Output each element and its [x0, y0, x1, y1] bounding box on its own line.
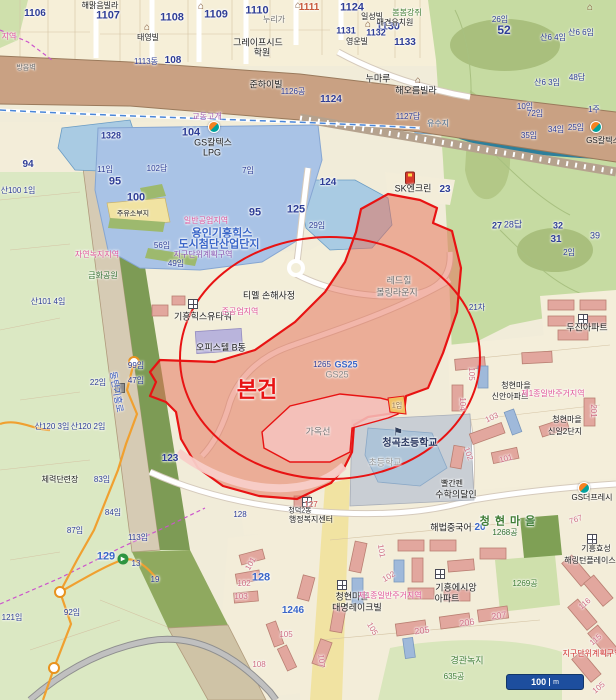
apt-chunghyun2-a: 청현마을 [552, 416, 581, 424]
center-name: 행정복지센터 [289, 516, 333, 524]
lot-1im-small: 1임 [392, 403, 402, 410]
apt-dujin: 두진아파트 [566, 324, 607, 333]
apt-hyosung-a: 기흥효성 [581, 545, 610, 553]
parcel-gas: 주유소부지 [117, 211, 149, 218]
apt-hyosung-b: 해링턴플레이스 [564, 557, 616, 565]
lot-48: 48답 [569, 74, 585, 82]
roundabout [289, 261, 303, 275]
lot-san101: 산101 4임 [31, 298, 66, 306]
lot-635: 635공 [444, 673, 465, 681]
lot-129: 129 [97, 552, 115, 563]
lot-1269: 1269공 [512, 580, 537, 588]
zone-semi-industrial: 준공업지역 [222, 308, 259, 316]
school-ghost: 초등학교 [368, 459, 401, 468]
building-icon-hicksu [188, 299, 198, 309]
building-icon-daemyung [337, 580, 347, 590]
num-108b: 108 [252, 661, 265, 669]
lot-128: 128 [233, 511, 246, 519]
zone-res1-b: 제1종일반주거지역 [358, 592, 421, 600]
lot-1131: 1131 [336, 27, 356, 36]
lot-22im: 22임 [90, 379, 106, 387]
lot-1106: 1106 [24, 9, 46, 19]
subject-bongeon: 본건 [237, 379, 277, 401]
lot-87im: 87임 [67, 527, 83, 535]
gs-logo-icon-right [590, 121, 602, 133]
lot-27: 27 [492, 222, 502, 231]
lot-25im: 25임 [568, 124, 584, 132]
lot-1107: 1107 [96, 11, 120, 22]
num-102b: 102 [237, 580, 250, 588]
lot-84im: 84임 [105, 509, 121, 517]
center-dong: 청덕2동 [288, 508, 311, 515]
gs25-name: GS25 [334, 361, 357, 370]
sk-encleen: SK엔크린 [395, 185, 432, 194]
lot-83im: 83임 [94, 476, 110, 484]
lot-1113: 1113동 [134, 58, 158, 66]
park-geumhwa: 금화공원 [88, 272, 117, 280]
fitness-area: 체력단련장 [42, 476, 79, 484]
lot-95a: 95 [109, 177, 121, 188]
scale-value: 100 [531, 677, 546, 687]
gs-fresh: GS더프레시 [572, 494, 613, 502]
num-201: 201 [589, 404, 597, 417]
lot-56im: 56임 [154, 242, 170, 250]
lot-1132: 1132 [366, 29, 386, 38]
scale-tick [549, 678, 550, 686]
lot-95b: 95 [249, 208, 261, 219]
lot-32: 32 [553, 222, 563, 231]
lot-35im: 35임 [521, 132, 537, 140]
txt-nuriga: 누리가 [263, 16, 285, 24]
bldg-haeoreum: 해오름빌라 [395, 87, 436, 96]
rest-numaru: 누마루 [366, 75, 391, 84]
apt-chunghyun2-b: 신일2단지 [548, 428, 582, 436]
zone-industrial: 일반공업지역 [184, 217, 228, 225]
lot-1111: 1111 [299, 3, 320, 13]
bldg-taeyoung: 태영빌 [137, 34, 159, 42]
school-icon: ⚑ [393, 428, 403, 439]
lot-1109: 1109 [204, 10, 228, 21]
noise-barrier: 방음벽 [16, 65, 35, 72]
building-icon-esiang [435, 569, 445, 579]
num-105: 105 [467, 367, 475, 380]
lot-121im: 121임 [2, 614, 23, 622]
pet-kindergarten-1: 봄봄강쥐 [392, 9, 421, 17]
lot-29im: 29임 [309, 222, 325, 230]
lot-13: 13 [132, 560, 141, 568]
map-canvas[interactable]: 1106해맑음빌라11071108태영빌11091110누리가11111124일… [0, 0, 616, 700]
village-chunghyun-green: 청현마을 [480, 517, 540, 528]
apt-esiang-a: 기흥에시앙 [435, 584, 476, 593]
lot-28dap: 28답 [504, 221, 522, 230]
park-gyeonggwan: 경관녹지 [450, 657, 483, 666]
pond-yusuji: 유수지 [427, 120, 449, 128]
academy-grapeseed-1: 그레이프시드 [233, 39, 283, 48]
lot-108: 108 [165, 56, 182, 66]
gs-lpg-2: LPG [203, 149, 221, 158]
lot-7im: 7임 [242, 167, 254, 175]
house-icon-4: ⌂ [144, 23, 150, 33]
lot-34im: 34임 [548, 126, 564, 134]
gs25-lot: 1265 [313, 361, 331, 369]
num-103b: 103 [234, 593, 247, 601]
lot-2im: 2임 [563, 249, 575, 257]
school-cheonggok: 청곡초등학교 [382, 439, 437, 449]
apt-daemyung-b: 대명레이크빌 [332, 604, 382, 613]
lot-san6-3: 산6 3임 [534, 79, 560, 87]
lot-san120-2: 산120 2임 [71, 423, 106, 431]
lot-1126: 1126공 [281, 88, 306, 96]
redhill-2: 볼링라운지 [376, 289, 417, 298]
lot-123: 123 [162, 454, 179, 464]
lot-94: 94 [22, 160, 33, 170]
lot-1268: 1268공 [492, 529, 517, 537]
lot-100: 100 [127, 193, 145, 204]
lot-99im: 99임 [128, 362, 144, 370]
lot-19: 19 [151, 576, 160, 584]
lot-san6-4: 산6 4임 [540, 34, 566, 42]
lot-23: 23 [439, 185, 450, 195]
apt-esiang-b: 아파트 [435, 595, 460, 604]
zone-partial: 지역 [2, 33, 17, 41]
lot-1124b: 1124 [320, 95, 342, 105]
redpen-1: 빨간펜 [441, 480, 463, 488]
lot-72im: 72임 [527, 110, 543, 118]
lot-21cha: 21차 [469, 304, 485, 312]
pet-kindergarten-2: 애견유치원 [377, 19, 414, 27]
academy-grapeseed-2: 학원 [254, 49, 271, 58]
zone-res1-a: 제1종일반주거지역 [521, 390, 584, 398]
gs-logo-icon-lpg [208, 121, 220, 133]
complex-name-2: 도시첨단산업단지 [179, 240, 260, 251]
num-107c: 107 [316, 654, 325, 668]
house-icon-6: ⌂ [587, 3, 593, 13]
area-gaokseon: 가옥선 [306, 428, 331, 437]
lot-1133: 1133 [394, 38, 416, 48]
lot-1108: 1108 [160, 13, 184, 24]
lot-92im: 92임 [64, 609, 80, 617]
lot-1ju: 1주 [588, 106, 600, 114]
bldg-junhaivil: 준하이빌 [249, 81, 282, 90]
lot-1246: 1246 [282, 606, 304, 616]
scale-bar: 100 m [506, 674, 584, 690]
lot-san120-3: 산120 3임 [35, 423, 70, 431]
gs-station-right: GS칼텍스 [586, 137, 616, 145]
chinese-academy: 해법중국어 [430, 524, 471, 533]
lot-102dap: 102답 [147, 165, 168, 173]
lot-125: 125 [287, 205, 305, 216]
lot-49im: 49임 [168, 260, 184, 268]
lot-1127: 1127답 [396, 113, 421, 121]
trail-node-icon-2 [54, 586, 66, 598]
house-icon-5: ⌂ [415, 76, 421, 86]
num-101c: 101 [376, 544, 386, 559]
gs-lpg-1: GS칼텍스 [194, 139, 232, 148]
play-icon: ▶ [118, 554, 129, 565]
building-icon-hyosung [587, 534, 597, 544]
road-gyodong: 교동고개 [192, 113, 221, 121]
zone-district-red: 지구단위계획구역 [563, 650, 616, 658]
lot-31: 31 [550, 235, 561, 245]
lot-52: 52 [497, 24, 510, 36]
lot-47im: 47임 [128, 377, 144, 385]
lot-san100: 산100 1임 [1, 187, 36, 195]
lot-113im: 113임 [128, 534, 148, 542]
redpen-2: 수학의달인 [435, 491, 476, 500]
bldg-youngwoon: 영운빌 [346, 38, 368, 46]
lot-124: 124 [320, 178, 337, 188]
bldg-officetel: 오피스텔 B동 [196, 344, 246, 353]
redhill-1: 레드힐 [387, 277, 412, 286]
biz-timel: 티멜 손해사정 [243, 292, 295, 301]
lot-san6-6: 산6 6임 [568, 29, 594, 37]
lot-1328: 1328 [101, 132, 121, 141]
zone-district-unit: 지구단위계획구역 [174, 251, 233, 259]
lot-11im: 11임 [97, 166, 113, 174]
scale-unit: m [553, 679, 559, 686]
gs25-sub: GS25 [325, 371, 348, 380]
lot-128b: 128 [252, 573, 270, 584]
num-105b: 105 [279, 631, 292, 639]
lot-39: 39 [590, 232, 600, 241]
trail-node-icon-3 [48, 662, 60, 674]
zone-natural-green: 자연녹지지역 [75, 251, 119, 259]
num-104: 104 [458, 397, 466, 410]
